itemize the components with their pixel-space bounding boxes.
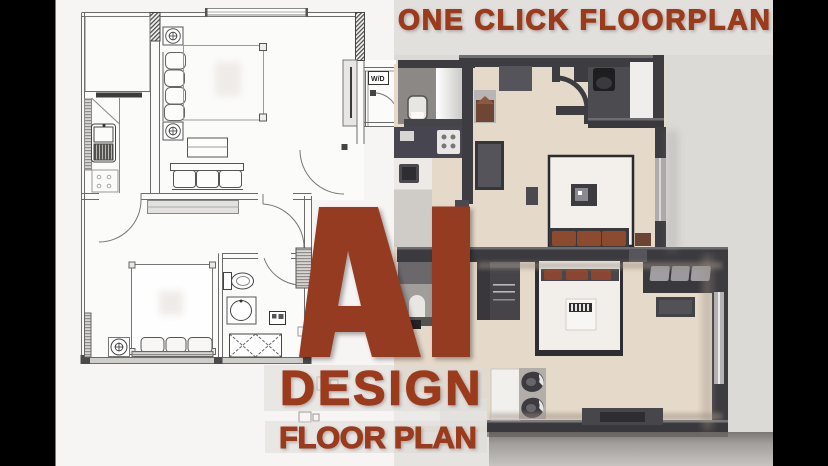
- svg-text:FLOOR PLAN: FLOOR PLAN: [279, 420, 477, 455]
- svg-text:ONE CLICK FLOORPLAN: ONE CLICK FLOORPLAN: [398, 4, 772, 36]
- svg-text:W/D: W/D: [371, 76, 385, 83]
- svg-text:DESIGN: DESIGN: [280, 362, 483, 416]
